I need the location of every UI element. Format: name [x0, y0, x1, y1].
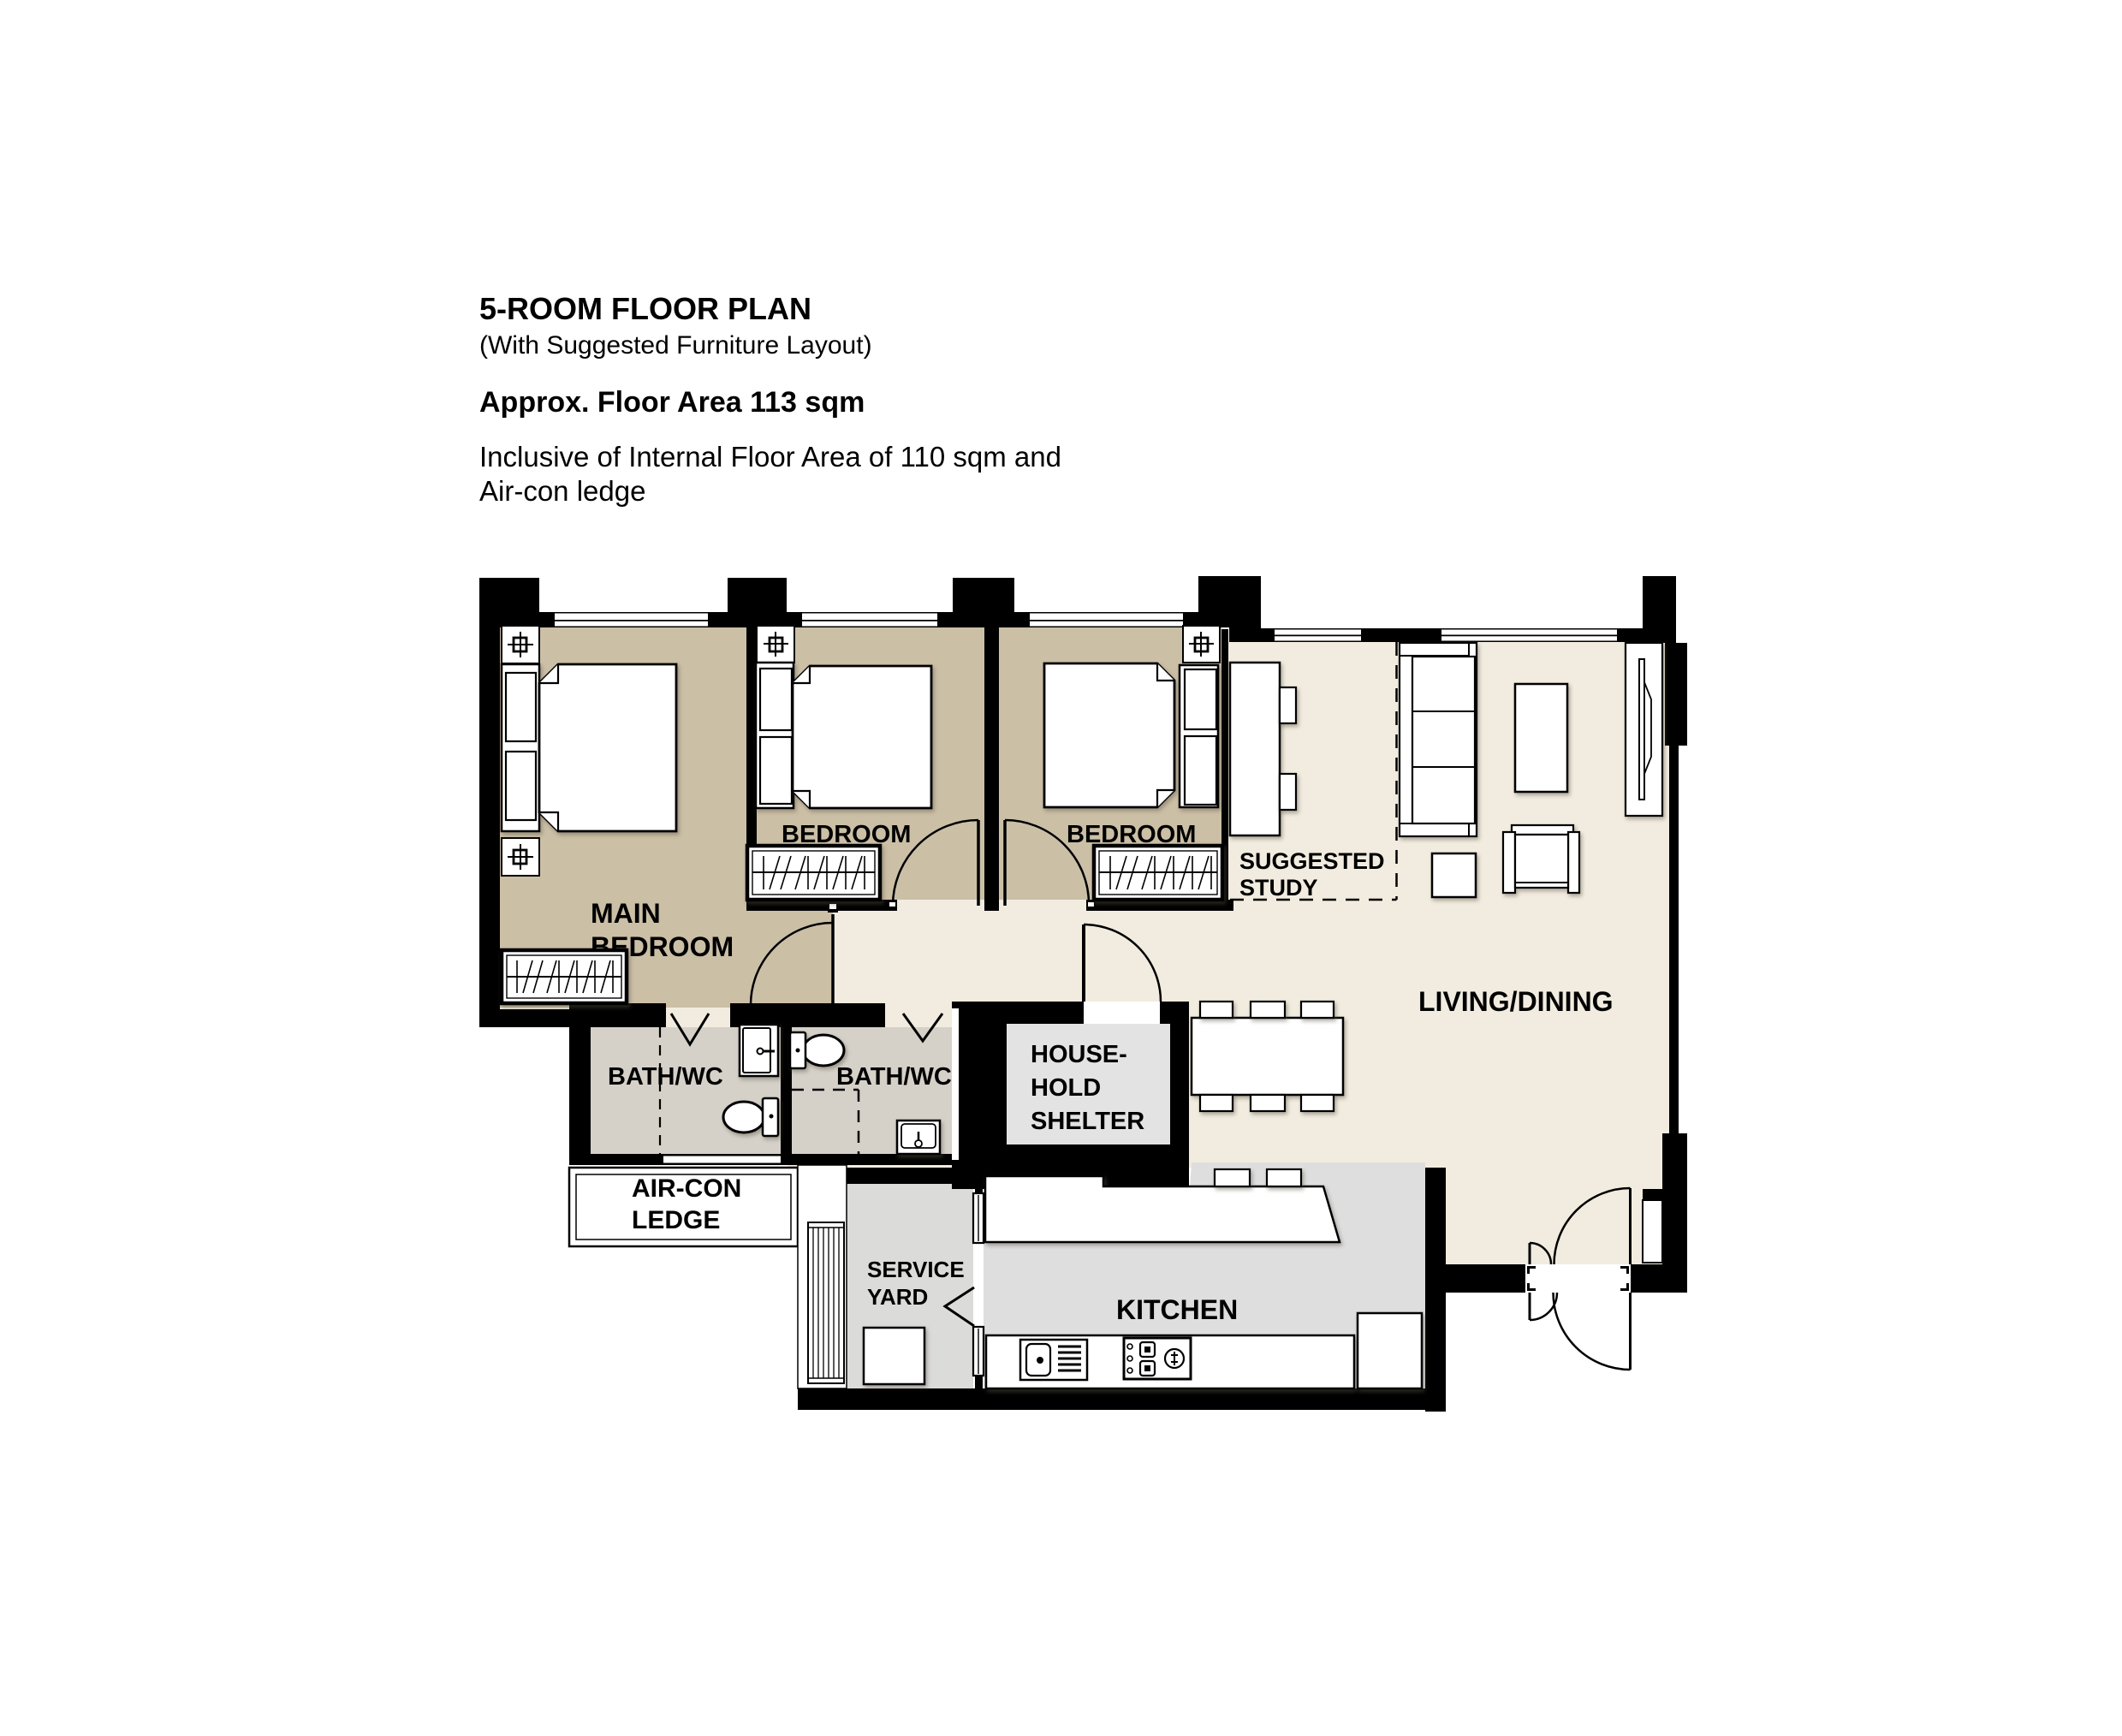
svg-text:AIR-CON: AIR-CON — [632, 1174, 741, 1203]
svg-text:SHELTER: SHELTER — [1031, 1108, 1144, 1135]
svg-text:5-ROOM FLOOR PLAN: 5-ROOM FLOOR PLAN — [479, 291, 811, 326]
svg-text:BATH/WC: BATH/WC — [608, 1063, 723, 1091]
svg-text:HOUSE-: HOUSE- — [1031, 1041, 1127, 1068]
svg-text:LIVING/DINING: LIVING/DINING — [1418, 986, 1614, 1017]
svg-text:Inclusive of Internal Floor Ar: Inclusive of Internal Floor Area of 110 … — [479, 441, 1061, 473]
svg-text:YARD: YARD — [867, 1284, 928, 1310]
svg-text:HOLD: HOLD — [1031, 1074, 1101, 1102]
svg-text:MAIN: MAIN — [591, 898, 661, 929]
svg-text:Air-con ledge: Air-con ledge — [479, 475, 645, 507]
svg-text:SERVICE: SERVICE — [867, 1257, 965, 1282]
svg-text:BATH/WC: BATH/WC — [836, 1063, 952, 1091]
svg-text:KITCHEN: KITCHEN — [1116, 1294, 1238, 1325]
svg-text:(With Suggested Furniture Layo: (With Suggested Furniture Layout) — [479, 331, 872, 360]
svg-text:LEDGE: LEDGE — [632, 1206, 720, 1234]
svg-text:STUDY: STUDY — [1239, 875, 1318, 901]
svg-text:Approx. Floor Area 113 sqm: Approx. Floor Area 113 sqm — [479, 386, 865, 419]
svg-text:SUGGESTED: SUGGESTED — [1239, 848, 1385, 874]
